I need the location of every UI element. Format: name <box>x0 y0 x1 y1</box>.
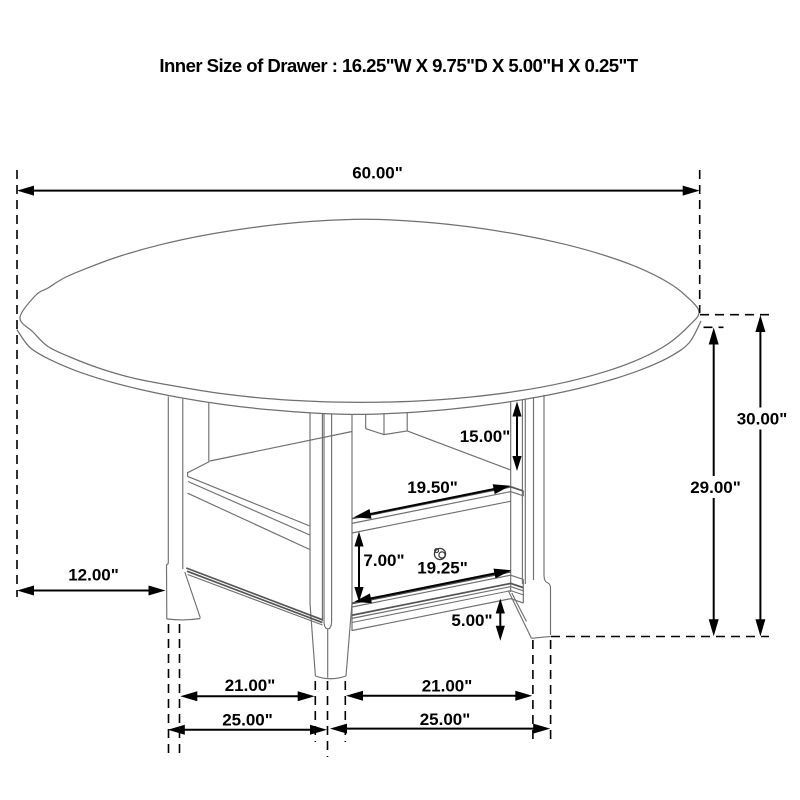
svg-text:12.00": 12.00" <box>68 566 119 585</box>
svg-text:60.00": 60.00" <box>352 164 403 183</box>
svg-text:25.00": 25.00" <box>420 710 471 729</box>
svg-text:15.00": 15.00" <box>460 427 511 446</box>
svg-text:30.00": 30.00" <box>737 410 788 429</box>
svg-text:19.50": 19.50" <box>407 478 458 497</box>
svg-text:21.00": 21.00" <box>225 676 276 695</box>
svg-text:19.25": 19.25" <box>417 559 468 578</box>
svg-text:7.00": 7.00" <box>363 551 404 570</box>
svg-text:Inner Size of Drawer : 16.25"W: Inner Size of Drawer : 16.25"W X 9.75"D … <box>159 55 638 76</box>
svg-text:5.00": 5.00" <box>451 611 492 630</box>
svg-text:25.00": 25.00" <box>222 711 273 730</box>
svg-text:29.00": 29.00" <box>690 478 741 497</box>
svg-text:21.00": 21.00" <box>422 677 473 696</box>
